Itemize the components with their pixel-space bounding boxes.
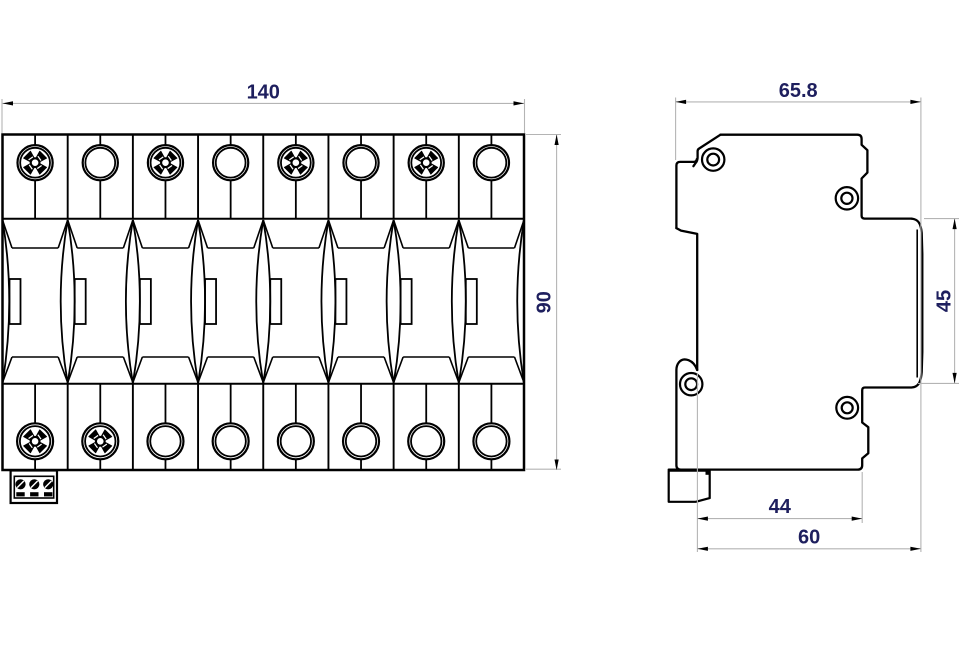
svg-text:65.8: 65.8 [779, 80, 818, 102]
svg-text:90: 90 [534, 291, 556, 313]
svg-text:140: 140 [247, 82, 280, 104]
svg-text:60: 60 [798, 527, 820, 549]
svg-text:45: 45 [933, 290, 955, 312]
svg-text:44: 44 [769, 496, 792, 518]
